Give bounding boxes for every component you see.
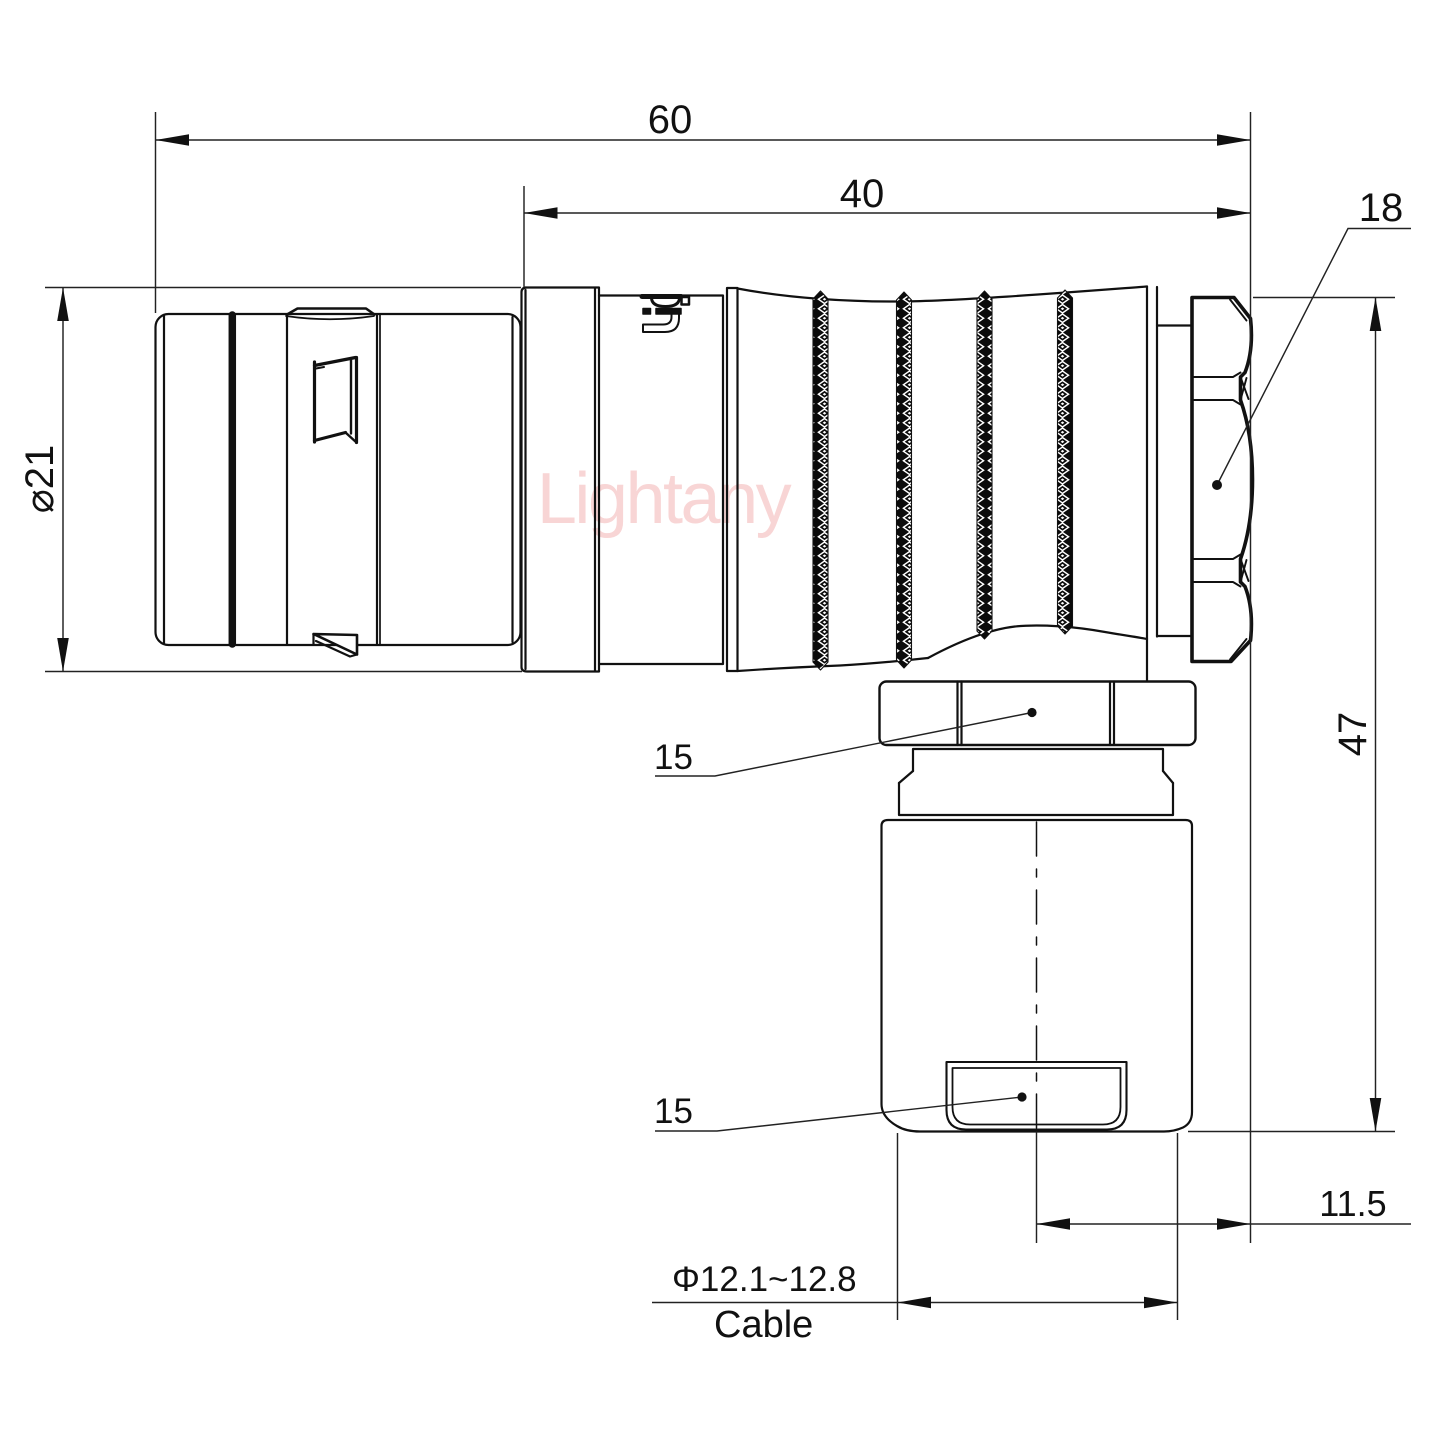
svg-text:60: 60 bbox=[648, 98, 693, 142]
svg-text:Φ12.1~12.8: Φ12.1~12.8 bbox=[672, 1260, 857, 1299]
svg-text:18: 18 bbox=[1359, 186, 1404, 230]
svg-text:15: 15 bbox=[654, 738, 693, 777]
svg-text:40: 40 bbox=[840, 172, 885, 216]
svg-text:47: 47 bbox=[1331, 712, 1375, 757]
svg-text:11.5: 11.5 bbox=[1319, 1183, 1386, 1224]
svg-text:15: 15 bbox=[654, 1092, 693, 1131]
svg-text:⌀21: ⌀21 bbox=[18, 445, 62, 514]
svg-text:Lightany: Lightany bbox=[537, 459, 792, 539]
svg-text:Cable: Cable bbox=[714, 1304, 813, 1346]
